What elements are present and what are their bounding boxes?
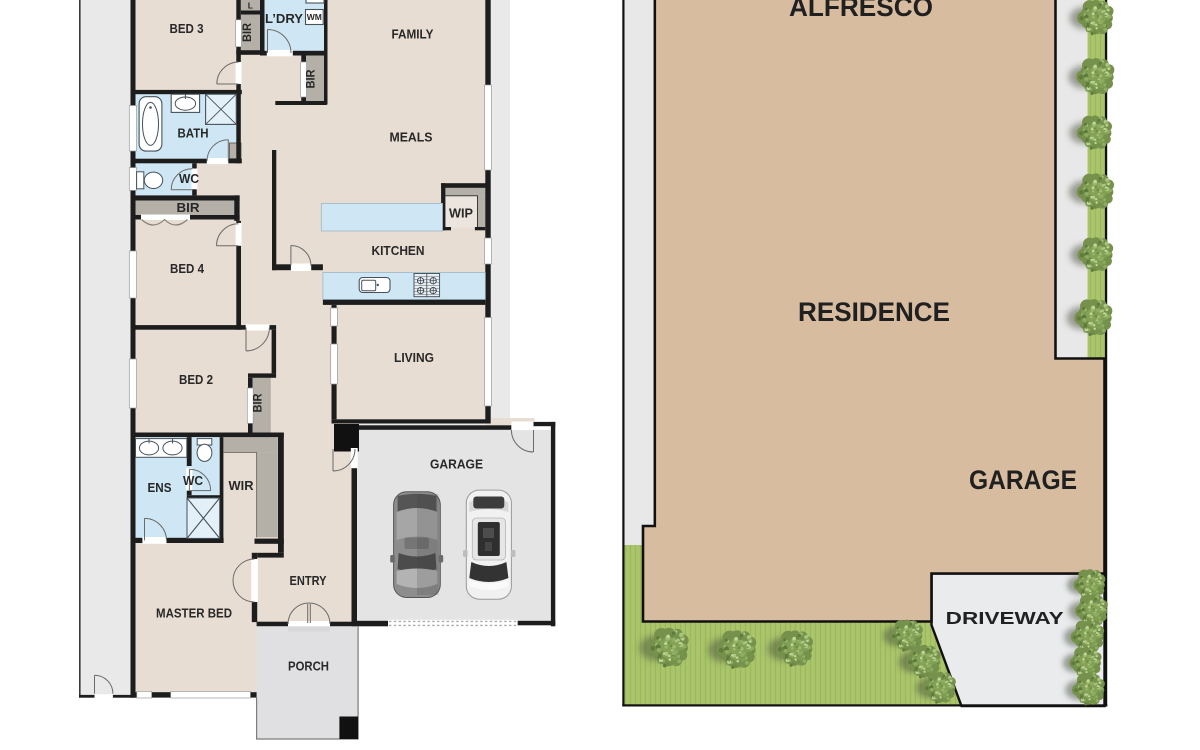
svg-text:L: L — [248, 1, 253, 11]
svg-text:ENTRY: ENTRY — [290, 573, 327, 588]
svg-text:BED 3: BED 3 — [170, 21, 204, 36]
svg-text:BED 2: BED 2 — [179, 372, 213, 387]
svg-text:ALFRESCO: ALFRESCO — [789, 0, 933, 22]
svg-text:WIR: WIR — [229, 478, 255, 493]
svg-text:BATH: BATH — [178, 125, 209, 140]
svg-text:FAMILY: FAMILY — [392, 27, 434, 42]
svg-text:LIVING: LIVING — [394, 350, 434, 365]
svg-text:ENS: ENS — [148, 480, 172, 495]
svg-text:WM: WM — [307, 12, 322, 22]
svg-text:MEALS: MEALS — [390, 130, 433, 145]
svg-text:L’DRY: L’DRY — [265, 11, 303, 26]
svg-text:BIR: BIR — [242, 22, 254, 42]
svg-text:GARAGE: GARAGE — [430, 457, 483, 472]
svg-text:WIP: WIP — [449, 206, 473, 221]
svg-text:GARAGE: GARAGE — [969, 465, 1077, 495]
svg-text:KITCHEN: KITCHEN — [372, 243, 425, 258]
svg-text:BIR: BIR — [253, 393, 265, 413]
svg-text:WC: WC — [183, 473, 204, 488]
svg-text:MASTER BED: MASTER BED — [156, 606, 232, 621]
svg-text:BIR: BIR — [306, 69, 318, 89]
svg-text:WC: WC — [179, 171, 200, 186]
svg-text:DRIVEWAY: DRIVEWAY — [946, 608, 1064, 628]
svg-text:BED 4: BED 4 — [170, 261, 205, 276]
svg-text:BIR: BIR — [177, 200, 201, 215]
svg-text:PORCH: PORCH — [288, 659, 329, 674]
svg-text:RESIDENCE: RESIDENCE — [798, 297, 950, 327]
